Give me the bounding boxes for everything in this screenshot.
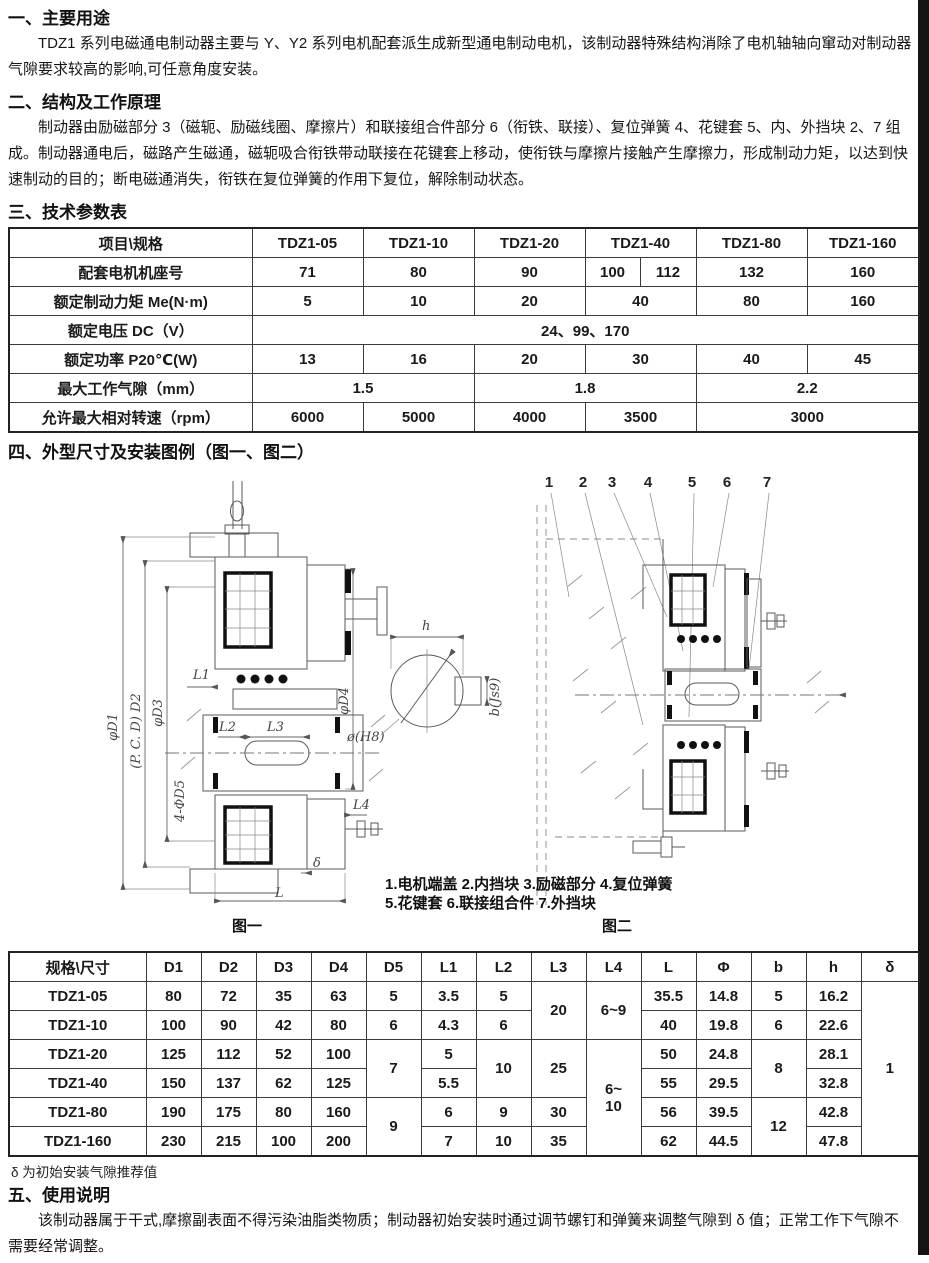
header-cell: L4 — [586, 952, 641, 982]
callout-7: 7 — [763, 474, 771, 491]
table-cell: 10 — [363, 287, 474, 316]
technical-parameters-table: 项目\规格TDZ1-05TDZ1-10TDZ1-20TDZ1-40TDZ1-80… — [8, 227, 920, 433]
table-cell: 35 — [531, 1127, 586, 1157]
table-cell: 4.3 — [421, 1011, 476, 1040]
callout-4: 4 — [644, 474, 653, 491]
header-cell: L1 — [421, 952, 476, 982]
table-cell: TDZ1-10 — [9, 1011, 146, 1040]
table-cell: 19.8 — [696, 1011, 751, 1040]
dim-label-l2: L2 — [218, 720, 236, 735]
table-row: TDZ1-1010090428064.364019.8622.6 — [9, 1011, 919, 1040]
callout-6: 6 — [723, 474, 731, 491]
table-cell: TDZ1-05 — [9, 982, 146, 1011]
table-cell: TDZ1-20 — [9, 1040, 146, 1069]
table-row: TDZ1-20125112521007510256~ 105024.8828.1 — [9, 1040, 919, 1069]
table-cell: 125 — [146, 1040, 201, 1069]
figure-2-legend: 1.电机端盖 2.内挡块 3.励磁部分 4.复位弹簧 5.花键套 6.联接组合件… — [385, 875, 673, 913]
table-cell: 5 — [476, 982, 531, 1011]
table-cell: TDZ1-80 — [9, 1098, 146, 1127]
table-cell: 50 — [641, 1040, 696, 1069]
table-cell: 8 — [751, 1040, 806, 1098]
table-cell: 10 — [476, 1040, 531, 1098]
excitation-coil-lower — [225, 807, 271, 863]
return-springs — [237, 675, 288, 684]
table-row: 允许最大相对转速（rpm）60005000400035003000 — [9, 403, 919, 433]
table-cell: 80 — [311, 1011, 366, 1040]
table-cell: 5 — [421, 1040, 476, 1069]
header-cell: 项目\规格 — [9, 228, 252, 258]
table-cell: 20 — [474, 287, 585, 316]
header-cell: δ — [861, 952, 919, 982]
table-cell: 5000 — [363, 403, 474, 433]
table-cell: 6 — [476, 1011, 531, 1040]
table-cell: 最大工作气隙（mm） — [9, 374, 252, 403]
header-cell: TDZ1-160 — [807, 228, 919, 258]
table-cell: 80 — [146, 982, 201, 1011]
table-cell: 10 — [476, 1127, 531, 1157]
table-cell: 5.5 — [421, 1069, 476, 1098]
table-cell: 150 — [146, 1069, 201, 1098]
table-cell: 25 — [531, 1040, 586, 1098]
table-cell: 132 — [696, 258, 807, 287]
table-cell: 56 — [641, 1098, 696, 1127]
dim-label-l: L — [274, 886, 284, 901]
table-cell: 100 — [256, 1127, 311, 1157]
callout-3: 3 — [608, 474, 616, 491]
table-cell: 80 — [256, 1098, 311, 1127]
header-cell: D4 — [311, 952, 366, 982]
table-cell: 6~9 — [586, 982, 641, 1040]
terminal-leads — [225, 481, 249, 557]
table-cell: 6 — [366, 1011, 421, 1040]
table-cell: 112 — [640, 258, 696, 287]
table-cell: 6 — [421, 1098, 476, 1127]
table-row: 配套电机机座号718090100112132160 — [9, 258, 919, 287]
table-cell: TDZ1-160 — [9, 1127, 146, 1157]
table-cell: 20 — [531, 982, 586, 1040]
header-cell: h — [806, 952, 861, 982]
dim-label-l3: L3 — [266, 720, 284, 735]
table-cell: 6 — [751, 1011, 806, 1040]
table-cell: 3000 — [696, 403, 919, 433]
table-cell: 190 — [146, 1098, 201, 1127]
callout-1: 1 — [545, 474, 553, 491]
table-cell: 29.5 — [696, 1069, 751, 1098]
header-cell: TDZ1-80 — [696, 228, 807, 258]
table-cell: 39.5 — [696, 1098, 751, 1127]
header-cell: TDZ1-05 — [252, 228, 363, 258]
table-row: 额定制动力矩 Me(N·m)510204080160 — [9, 287, 919, 316]
table-cell: 125 — [311, 1069, 366, 1098]
dim-label-l4: L4 — [352, 798, 370, 813]
table-cell: 200 — [311, 1127, 366, 1157]
dimensions-table: 规格\尺寸D1D2D3D4D5L1L2L3L4LΦbhδTDZ1-0580723… — [8, 951, 920, 1157]
callout-5: 5 — [688, 474, 696, 491]
table-cell: 71 — [252, 258, 363, 287]
header-cell: Φ — [696, 952, 751, 982]
figure-2-drawing: 1 2 3 4 5 6 7 — [515, 469, 911, 914]
table-row: 最大工作气隙（mm）1.51.82.2 — [9, 374, 919, 403]
table-footnote: δ 为初始安装气隙推荐值 — [11, 1161, 912, 1181]
table-cell: 45 — [807, 345, 919, 374]
table-cell: 90 — [201, 1011, 256, 1040]
dim-label-oh8: ø(H8) — [346, 730, 385, 745]
excitation-coil — [225, 573, 271, 647]
table-cell: 3500 — [585, 403, 696, 433]
table-cell: 35 — [256, 982, 311, 1011]
table-cell: 配套电机机座号 — [9, 258, 252, 287]
instructions-paragraph: 该制动器属于干式,摩擦副表面不得污染油脂类物质；制动器初始安装时通过调节螺钉和弹… — [8, 1208, 912, 1260]
table-cell: 4000 — [474, 403, 585, 433]
table-cell: 16.2 — [806, 982, 861, 1011]
figure-1-caption: 图一 — [232, 915, 262, 936]
table-cell: 62 — [641, 1127, 696, 1157]
table-row: 额定功率 P20℃(W)131620304045 — [9, 345, 919, 374]
table-cell: 22.6 — [806, 1011, 861, 1040]
table-cell: 24.8 — [696, 1040, 751, 1069]
dim-label-d2: (P. C. D) D2 — [129, 693, 144, 769]
figure-1-drawing: φD1 (P. C. D) D2 φD3 φD4 4-ΦD5 L1 L2 L3 … — [95, 469, 525, 929]
table-cell: 2.2 — [696, 374, 919, 403]
table-cell: 44.5 — [696, 1127, 751, 1157]
document-page: 一、主要用途 TDZ1 系列电磁通电制动器主要与 Y、Y2 系列电机配套派生成新… — [8, 0, 912, 1263]
table-cell: 62 — [256, 1069, 311, 1098]
mounting-screw — [633, 837, 685, 857]
legend-line-2: 5.花键套 6.联接组合件 7.外挡块 — [385, 894, 673, 913]
table-cell: 13 — [252, 345, 363, 374]
section-heading-dimensions: 四、外型尺寸及安装图例（图一、图二） — [8, 438, 912, 463]
table-cell: 80 — [696, 287, 807, 316]
dim-label-l1: L1 — [192, 668, 210, 683]
table-cell: 30 — [531, 1098, 586, 1127]
table-cell: TDZ1-40 — [9, 1069, 146, 1098]
table-cell: 40 — [641, 1011, 696, 1040]
figure-2-caption: 图二 — [602, 915, 632, 936]
table-cell: 40 — [696, 345, 807, 374]
section-heading-usage: 一、主要用途 — [8, 4, 912, 29]
table-cell: 额定功率 P20℃(W) — [9, 345, 252, 374]
table-cell: 72 — [201, 982, 256, 1011]
table-cell: 3.5 — [421, 982, 476, 1011]
table-cell: 6~ 10 — [586, 1040, 641, 1157]
table-header-row: 规格\尺寸D1D2D3D4D5L1L2L3L4LΦbhδ — [9, 952, 919, 982]
table-row: TDZ1-058072356353.55206~935.514.8516.21 — [9, 982, 919, 1011]
dim-label-d5: 4-ΦD5 — [173, 780, 188, 823]
brake-assembly — [575, 565, 845, 857]
header-cell: L — [641, 952, 696, 982]
table-cell: 100 — [311, 1040, 366, 1069]
table-cell: 100 — [146, 1011, 201, 1040]
section-heading-params: 三、技术参数表 — [8, 198, 912, 223]
table-cell: 35.5 — [641, 982, 696, 1011]
adjusting-bolt — [345, 821, 383, 837]
table-cell: 52 — [256, 1040, 311, 1069]
table-cell: 112 — [201, 1040, 256, 1069]
header-cell: D1 — [146, 952, 201, 982]
header-cell: TDZ1-10 — [363, 228, 474, 258]
legend-line-1: 1.电机端盖 2.内挡块 3.励磁部分 4.复位弹簧 — [385, 875, 673, 894]
structure-paragraph: 制动器由励磁部分 3（磁轭、励磁线圈、摩擦片）和联接组合件部分 6（衔铁、联接）… — [8, 115, 912, 193]
table-cell: 9 — [366, 1098, 421, 1157]
header-cell: D2 — [201, 952, 256, 982]
table-cell: 215 — [201, 1127, 256, 1157]
table-cell: 100 — [585, 258, 640, 287]
table-cell: 5 — [751, 982, 806, 1011]
table-cell: 42 — [256, 1011, 311, 1040]
table-header-row: 项目\规格TDZ1-05TDZ1-10TDZ1-20TDZ1-40TDZ1-80… — [9, 228, 919, 258]
dim-label-h: h — [422, 619, 430, 634]
table-cell: 80 — [363, 258, 474, 287]
table-cell: 6000 — [252, 403, 363, 433]
table-cell: 32.8 — [806, 1069, 861, 1098]
table-cell: 16 — [363, 345, 474, 374]
table-cell: 5 — [366, 982, 421, 1011]
table-row: TDZ1-8019017580160969305639.51242.8 — [9, 1098, 919, 1127]
table-cell: 20 — [474, 345, 585, 374]
header-cell: D3 — [256, 952, 311, 982]
table-cell: 42.8 — [806, 1098, 861, 1127]
table-cell: 5 — [252, 287, 363, 316]
table-cell: 40 — [585, 287, 696, 316]
bore-keyway-detail: h b(Js9) ø(H8) — [346, 619, 503, 745]
section-heading-structure: 二、结构及工作原理 — [8, 88, 912, 113]
figures-area: φD1 (P. C. D) D2 φD3 φD4 4-ΦD5 L1 L2 L3 … — [8, 466, 912, 944]
table-cell: 额定电压 DC（V） — [9, 316, 252, 345]
header-cell: TDZ1-20 — [474, 228, 585, 258]
dim-label-d3: φD3 — [151, 699, 166, 727]
table-cell: 175 — [201, 1098, 256, 1127]
table-cell: 90 — [474, 258, 585, 287]
dim-label-d1: φD1 — [106, 713, 121, 741]
table-cell: 160 — [311, 1098, 366, 1127]
callout-2: 2 — [579, 474, 587, 491]
table-cell: 230 — [146, 1127, 201, 1157]
dim-label-d4: φD4 — [337, 687, 352, 715]
table-cell: 14.8 — [696, 982, 751, 1011]
dim-label-delta: δ — [313, 856, 321, 871]
dim-label-bjs9: b(Js9) — [488, 678, 503, 717]
table-cell: 1.8 — [474, 374, 696, 403]
table-cell: 额定制动力矩 Me(N·m) — [9, 287, 252, 316]
table-cell: 9 — [476, 1098, 531, 1127]
table-cell: 160 — [807, 287, 919, 316]
table-row: 额定电压 DC（V）24、99、170 — [9, 316, 919, 345]
header-cell: L2 — [476, 952, 531, 982]
motor-end-cover-outline — [537, 505, 663, 905]
table-cell: 1 — [861, 982, 919, 1157]
table-cell: 47.8 — [806, 1127, 861, 1157]
table-cell: 7 — [421, 1127, 476, 1157]
section-heading-instructions: 五、使用说明 — [8, 1181, 912, 1206]
header-cell: TDZ1-40 — [585, 228, 696, 258]
header-cell: 规格\尺寸 — [9, 952, 146, 982]
header-cell: b — [751, 952, 806, 982]
table-cell: 1.5 — [252, 374, 474, 403]
table-cell: 30 — [585, 345, 696, 374]
header-cell: D5 — [366, 952, 421, 982]
table-cell: 28.1 — [806, 1040, 861, 1069]
table-cell: 允许最大相对转速（rpm） — [9, 403, 252, 433]
header-cell: L3 — [531, 952, 586, 982]
table-cell: 160 — [807, 258, 919, 287]
table-cell: 24、99、170 — [252, 316, 919, 345]
table-cell: 63 — [311, 982, 366, 1011]
table-cell: 7 — [366, 1040, 421, 1098]
table-cell: 137 — [201, 1069, 256, 1098]
table-cell: 12 — [751, 1098, 806, 1157]
table-cell: 55 — [641, 1069, 696, 1098]
usage-paragraph: TDZ1 系列电磁通电制动器主要与 Y、Y2 系列电机配套派生成新型通电制动电机… — [8, 31, 912, 83]
